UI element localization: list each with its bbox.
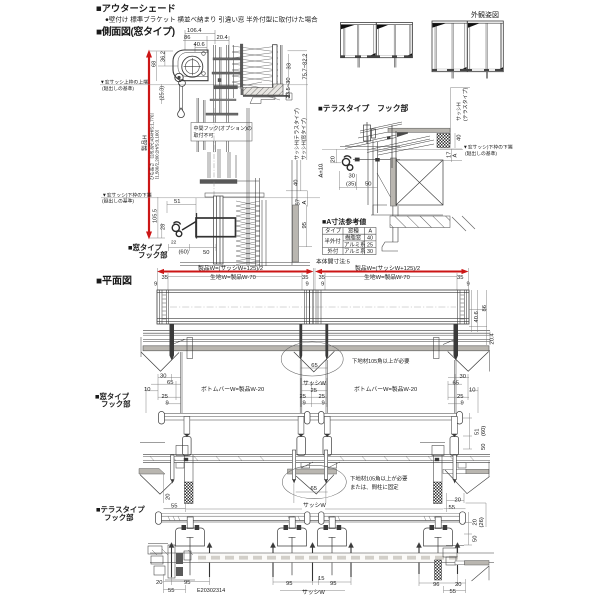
- svg-text:■側面図(窓タイプ): ■側面図(窓タイプ): [96, 25, 175, 38]
- svg-text:75.7~82.2: 75.7~82.2: [303, 54, 309, 80]
- svg-text:96: 96: [433, 582, 439, 588]
- svg-text:本体開寸法:5: 本体開寸法:5: [316, 258, 350, 266]
- svg-text:28: 28: [161, 224, 167, 230]
- svg-text:35: 35: [302, 275, 308, 281]
- svg-text:生地W=製品W-70: 生地W=製品W-70: [210, 273, 256, 281]
- svg-text:9: 9: [306, 282, 309, 288]
- svg-text:20: 20: [331, 156, 337, 162]
- svg-text:(35): (35): [346, 182, 356, 188]
- svg-text:■A寸法参考値: ■A寸法参考値: [322, 217, 366, 226]
- svg-text:9: 9: [166, 401, 169, 407]
- svg-text:30: 30: [460, 374, 466, 380]
- svg-text:25: 25: [319, 394, 325, 400]
- svg-text:フック部: フック部: [104, 513, 134, 522]
- svg-text:95: 95: [184, 580, 190, 586]
- svg-text:▼窓サッシ)下枠の下端: ▼窓サッシ)下枠の下端: [102, 192, 152, 199]
- svg-text:20: 20: [455, 582, 461, 588]
- svg-text:9: 9: [461, 401, 464, 407]
- svg-text:50: 50: [481, 444, 487, 450]
- svg-text:ボトムバーW=製品W-20: ボトムバーW=製品W-20: [201, 385, 264, 393]
- svg-text:50: 50: [203, 250, 209, 256]
- svg-text:25: 25: [457, 394, 463, 400]
- svg-text:製品W=(サッシW+125)/2: 製品W=(サッシW+125)/2: [198, 264, 263, 272]
- svg-text:製品H: 製品H: [141, 135, 149, 151]
- svg-text:35: 35: [319, 275, 325, 281]
- svg-text:55: 55: [450, 589, 456, 595]
- svg-text:51: 51: [174, 199, 180, 205]
- svg-text:106.4: 106.4: [187, 28, 202, 34]
- svg-text:窓種: 窓種: [348, 227, 359, 235]
- svg-text:9: 9: [154, 282, 157, 288]
- svg-text:●壁付け 標準ブラケット 横並べ納まり 引違い窓 半外付型に: ●壁付け 標準ブラケット 横並べ納まり 引違い窓 半外付型に取付けた場合: [105, 15, 318, 24]
- svg-text:取付不可: 取付不可: [194, 132, 214, 139]
- svg-text:65: 65: [167, 380, 173, 386]
- svg-text:下地材105角以上が必要: 下地材105角以上が必要: [352, 357, 410, 365]
- svg-text:外観姿図: 外観姿図: [471, 10, 499, 19]
- svg-text:105.5: 105.5: [153, 209, 159, 223]
- svg-text:95: 95: [286, 581, 292, 587]
- svg-text:40.6: 40.6: [194, 42, 205, 48]
- svg-text:サッシH(窓タイプ): サッシH(窓タイプ): [301, 118, 308, 160]
- svg-text:36.2: 36.2: [161, 51, 167, 62]
- svg-text:中間フック(オプション)の: 中間フック(オプション)の: [194, 125, 252, 132]
- svg-text:■テラスタイプ フック部: ■テラスタイプ フック部: [318, 103, 409, 113]
- svg-text:E20302314: E20302314: [197, 588, 225, 594]
- svg-text:57: 57: [296, 199, 302, 205]
- svg-text:65: 65: [453, 381, 459, 387]
- svg-text:A: A: [369, 229, 373, 235]
- svg-text:20: 20: [156, 580, 162, 586]
- svg-text:25: 25: [300, 394, 306, 400]
- svg-text:35: 35: [162, 275, 168, 281]
- svg-text:86: 86: [184, 35, 190, 41]
- svg-text:サッシW: サッシW: [302, 589, 325, 596]
- svg-text:95: 95: [302, 222, 308, 228]
- svg-text:アルミ系: アルミ系: [344, 240, 366, 248]
- svg-text:A+10: A+10: [319, 164, 325, 178]
- svg-text:(テラスタイプ): (テラスタイプ): [462, 87, 469, 121]
- svg-text:〔1,500/2,200:2H/S:3,100〕: 〔1,500/2,200:2H/S:3,100〕: [155, 127, 160, 182]
- svg-text:■アウターシェード: ■アウターシェード: [96, 3, 176, 14]
- svg-text:15: 15: [318, 576, 324, 582]
- svg-text:55: 55: [449, 505, 455, 511]
- svg-text:30: 30: [367, 249, 373, 255]
- svg-text:(廻出しの基準): (廻出しの基準): [465, 150, 497, 157]
- svg-text:25: 25: [162, 394, 168, 400]
- svg-text:20: 20: [473, 519, 479, 525]
- svg-text:50: 50: [473, 536, 479, 542]
- svg-text:33: 33: [287, 63, 293, 69]
- svg-text:半外付: 半外付: [325, 237, 342, 245]
- svg-text:または、間柱に固定: または、間柱に固定: [350, 483, 399, 491]
- svg-text:40: 40: [457, 135, 463, 141]
- svg-text:サッシH: サッシH: [457, 102, 463, 121]
- svg-text:(25.3): (25.3): [160, 86, 166, 101]
- svg-text:20.4: 20.4: [217, 35, 229, 41]
- svg-text:9: 9: [303, 401, 306, 407]
- svg-text:30: 30: [349, 174, 355, 180]
- svg-text:サッシW: サッシW: [303, 380, 326, 387]
- svg-text:9: 9: [322, 401, 325, 407]
- svg-text:65: 65: [311, 486, 317, 492]
- svg-text:ボトムバーW=製品W-20: ボトムバーW=製品W-20: [354, 385, 417, 393]
- svg-text:樹脂窓: 樹脂窓: [345, 234, 362, 242]
- svg-text:サッシW: サッシW: [303, 502, 326, 509]
- svg-text:22: 22: [171, 240, 177, 246]
- svg-text:9: 9: [467, 282, 470, 288]
- svg-text:サッシH(テラスタイプ): サッシH(テラスタイプ): [294, 108, 301, 160]
- svg-text:25: 25: [311, 388, 317, 394]
- svg-text:95: 95: [330, 581, 336, 587]
- svg-text:23.5~30: 23.5~30: [286, 77, 292, 98]
- svg-text:フック部: フック部: [101, 400, 131, 409]
- svg-text:A: A: [302, 201, 308, 205]
- svg-text:製品W=(サッシW+125)/2: 製品W=(サッシW+125)/2: [355, 264, 420, 272]
- svg-text:▼窓サッシ)下枠の下端: ▼窓サッシ)下枠の下端: [463, 144, 513, 151]
- svg-text:86: 86: [482, 305, 488, 311]
- svg-text:▼窓サッシ上枠の上端: ▼窓サッシ上枠の上端: [100, 79, 148, 86]
- svg-text:50: 50: [365, 182, 371, 188]
- svg-text:(廻出しの基準): (廻出しの基準): [102, 85, 134, 92]
- svg-text:(60): (60): [179, 250, 189, 256]
- svg-text:40: 40: [367, 236, 373, 242]
- svg-text:65: 65: [311, 363, 317, 369]
- svg-text:20: 20: [455, 498, 461, 504]
- svg-text:(60): (60): [481, 426, 487, 436]
- svg-text:35: 35: [457, 275, 463, 281]
- svg-text:外付: 外付: [328, 247, 339, 255]
- svg-text:A: A: [453, 154, 459, 158]
- svg-text:下地材105角以上が必要: 下地材105角以上が必要: [350, 475, 408, 483]
- svg-text:30: 30: [160, 374, 166, 380]
- svg-text:アルミ系: アルミ系: [344, 247, 366, 255]
- svg-text:20.4: 20.4: [490, 332, 496, 344]
- svg-text:タイプ: タイプ: [325, 227, 342, 235]
- svg-text:(廻出しの基準): (廻出しの基準): [102, 198, 134, 205]
- svg-text:55: 55: [168, 588, 174, 594]
- svg-text:生地W=製品W-70: 生地W=製品W-70: [364, 273, 410, 281]
- svg-text:■平面図: ■平面図: [96, 275, 132, 287]
- svg-text:25: 25: [367, 242, 373, 248]
- svg-text:(26): (26): [479, 517, 485, 527]
- svg-text:10: 10: [469, 387, 475, 393]
- svg-text:40: 40: [294, 180, 300, 186]
- svg-text:9: 9: [321, 282, 324, 288]
- svg-text:20: 20: [166, 494, 172, 500]
- svg-text:フック部: フック部: [138, 251, 168, 260]
- svg-text:10: 10: [144, 387, 150, 393]
- svg-text:40.6: 40.6: [474, 311, 480, 322]
- svg-text:51: 51: [475, 429, 481, 435]
